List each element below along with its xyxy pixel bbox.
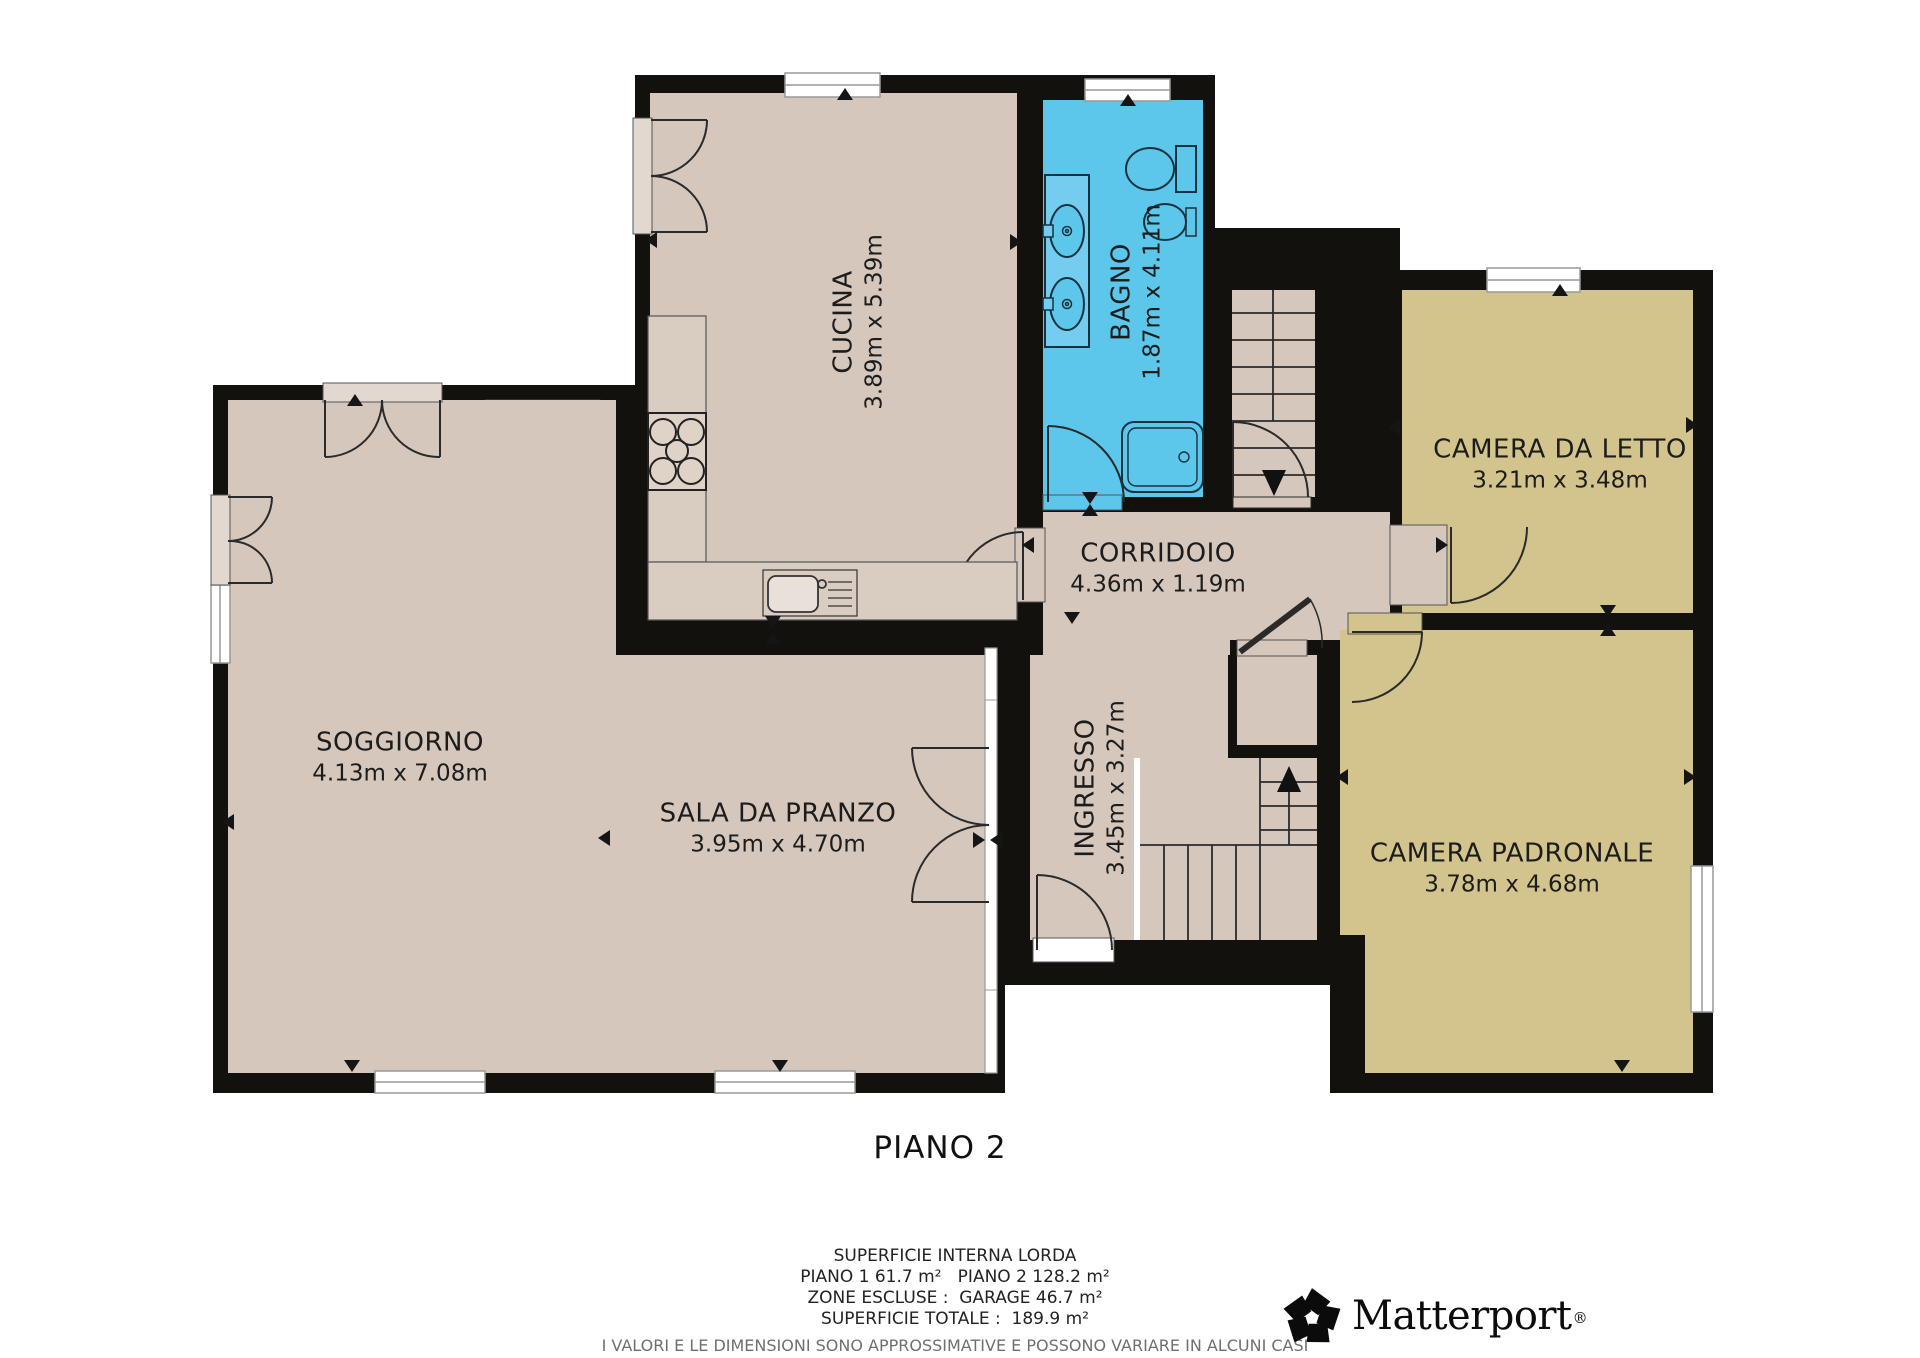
floor-opening: [616, 655, 650, 1073]
glass-partition: [985, 648, 997, 1073]
window-padronale-right: [1691, 866, 1713, 1012]
room-label-ingresso: INGRESSO3.45m x 3.27m: [1071, 700, 1130, 875]
brand-registered-mark: ®: [1573, 1309, 1588, 1327]
floor-sala: [650, 655, 985, 1073]
stove-icon: [648, 413, 706, 490]
room-label-soggiorno: SOGGIORNO4.13m x 7.08m: [312, 728, 487, 787]
summary-excluded: ZONE ESCLUSE : GARAGE 46.7 m²: [602, 1288, 1309, 1309]
matterport-brand: Matterport®: [1280, 1284, 1588, 1348]
area-summary: SUPERFICIE INTERNA LORDA PIANO 1 61.7 m²…: [602, 1246, 1309, 1356]
matterport-logo-icon: [1280, 1284, 1344, 1348]
floor-padronale2: [1365, 935, 1693, 1073]
kitchen-counter-bottom: [648, 562, 1017, 620]
room-label-bagno: BAGNO1.87m x 4.11m: [1107, 204, 1166, 379]
floor-opening2: [1043, 640, 1230, 656]
window-sala-bottom: [715, 1071, 855, 1093]
summary-disclaimer: I VALORI E LE DIMENSIONI SONO APPROSSIMA…: [602, 1335, 1309, 1356]
window-cucina: [785, 73, 880, 97]
room-label-camera-da-letto: CAMERA DA LETTO3.21m x 3.48m: [1433, 435, 1687, 494]
floor-title: PIANO 2: [873, 1130, 1006, 1166]
summary-heading: SUPERFICIE INTERNA LORDA: [602, 1246, 1309, 1267]
window-soggiorno-bottom: [375, 1071, 485, 1093]
room-label-cucina: CUCINA3.89m x 5.39m: [829, 234, 888, 409]
summary-floors: PIANO 1 61.7 m² PIANO 2 128.2 m²: [602, 1267, 1309, 1288]
room-label-corridoio: CORRIDOIO4.36m x 1.19m: [1070, 539, 1245, 598]
room-label-camera-padronale: CAMERA PADRONALE3.78m x 4.68m: [1370, 839, 1654, 898]
window-letto: [1487, 268, 1580, 292]
window-soggiorno-left: [211, 585, 230, 663]
brand-wordmark: Matterport: [1352, 1293, 1572, 1339]
room-label-sala-da-pranzo: SALA DA PRANZO3.95m x 4.70m: [660, 799, 897, 858]
floor-closet: [1237, 655, 1317, 745]
floorplan-page: CUCINA3.89m x 5.39m BAGNO1.87m x 4.11m C…: [0, 0, 1920, 1358]
summary-total: SUPERFICIE TOTALE : 189.9 m²: [602, 1309, 1309, 1330]
